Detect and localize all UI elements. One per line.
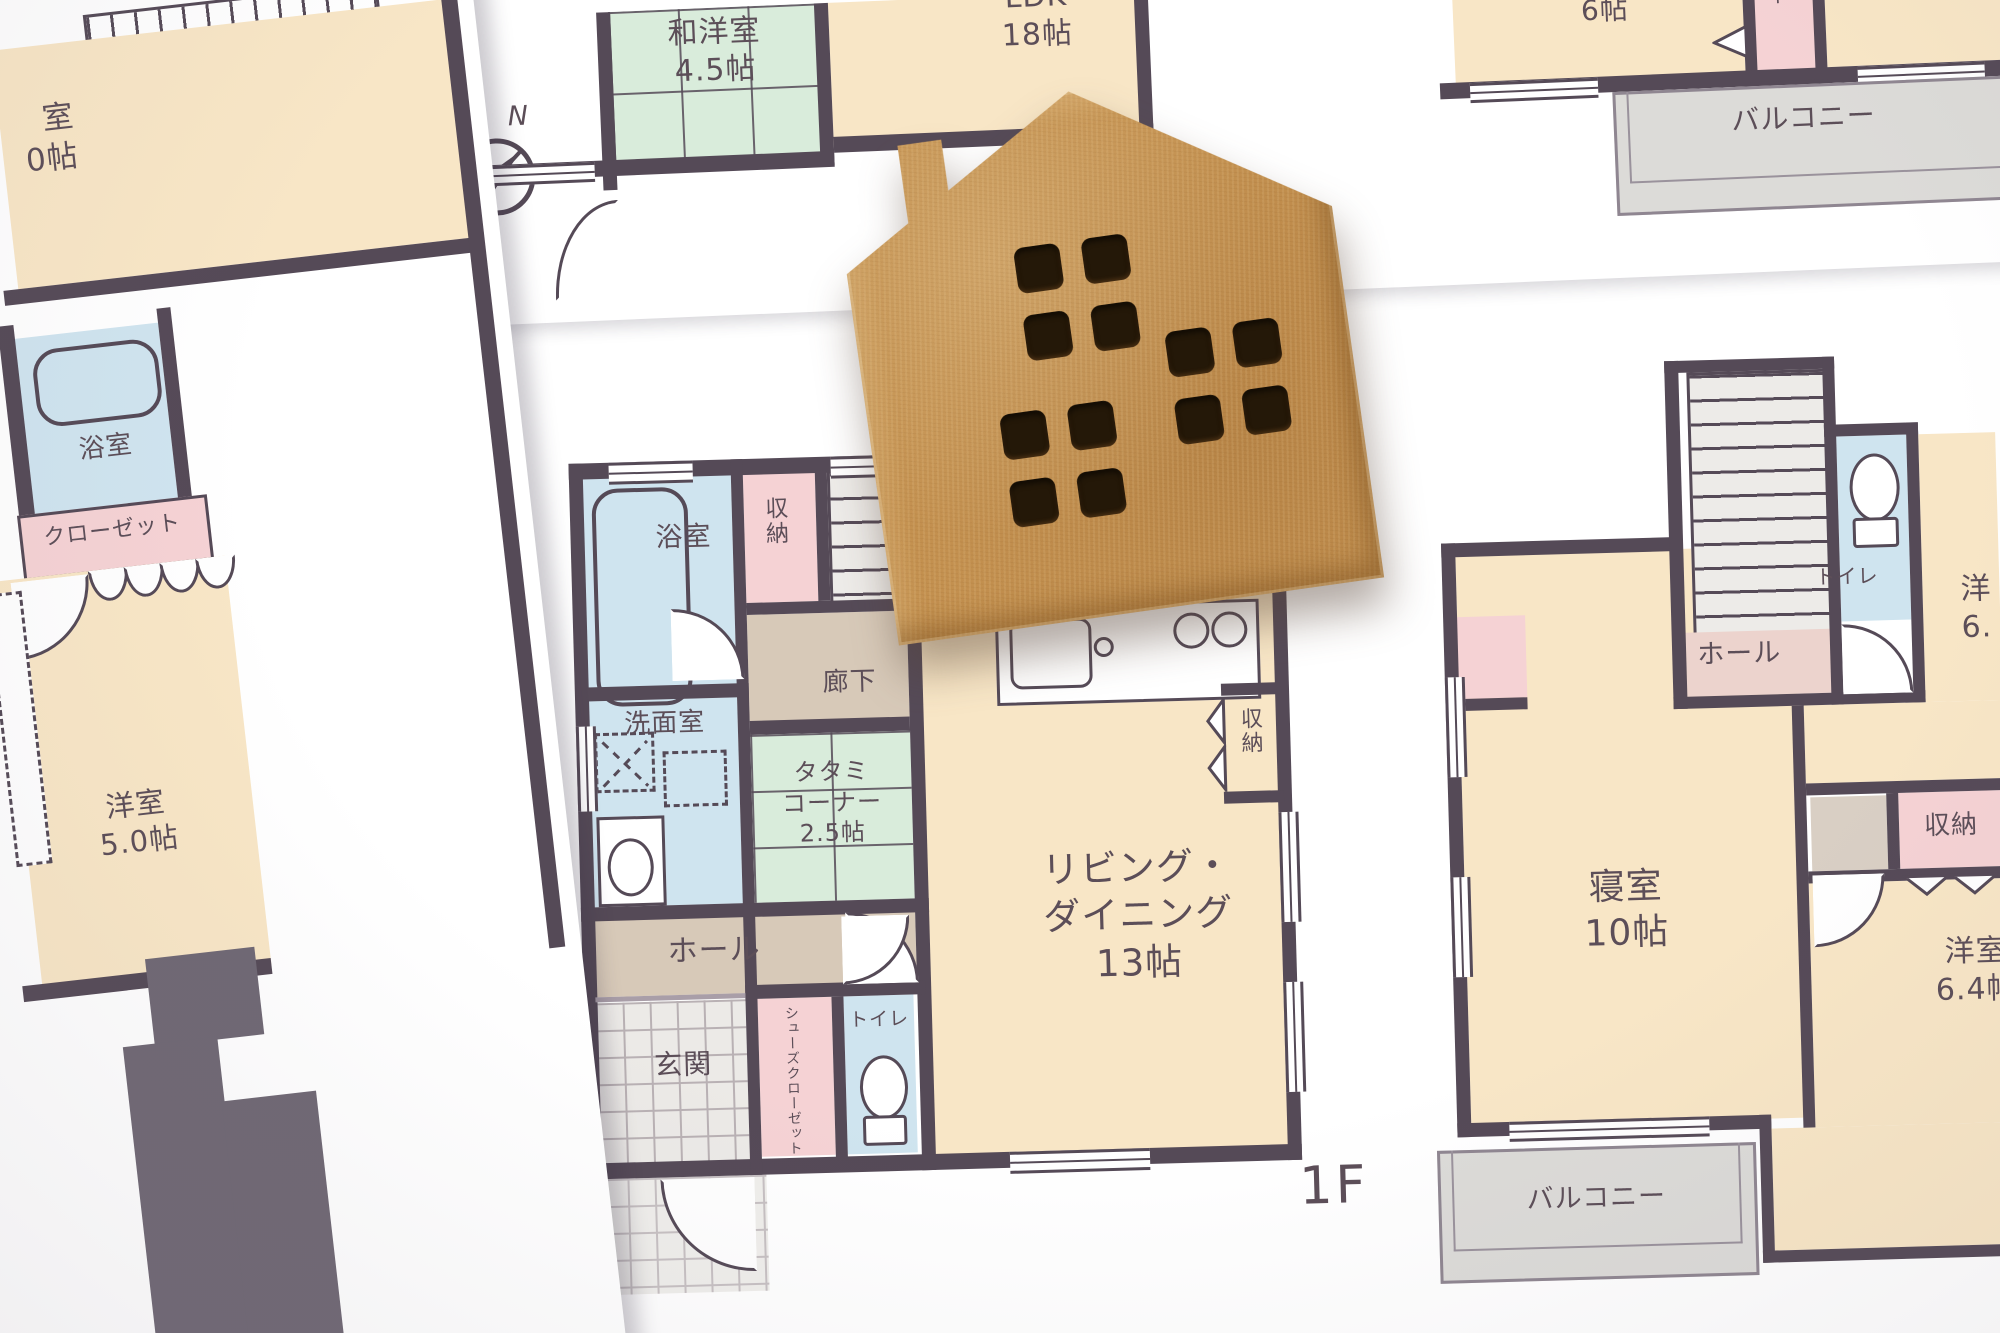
house-window-hole <box>999 409 1051 461</box>
wooden-house-body <box>826 57 1384 645</box>
house-window-hole <box>1164 326 1216 378</box>
house-window-hole <box>1013 242 1065 294</box>
wood-edge-shading <box>826 57 1384 645</box>
house-window-hole <box>1241 384 1293 436</box>
house-window-hole <box>1231 317 1283 369</box>
house-window-hole <box>1173 394 1225 446</box>
house-window-hole <box>1076 467 1128 519</box>
lp-bedroom-label: 洋室 5.0帖 <box>69 779 207 867</box>
lp-dark-structure <box>145 947 264 1047</box>
house-window-hole <box>1022 310 1074 362</box>
house-window-hole <box>1008 476 1060 528</box>
house-window-hole <box>1080 233 1132 285</box>
lp-bathtub-icon <box>30 337 164 429</box>
floor-plan-photo-scene: 浴室 収納 廊下 洗面室 タタミ コーナー 2.5帖 リビング・ ダイニング 1… <box>0 0 2000 1333</box>
wooden-house-model <box>826 57 1384 645</box>
house-window-hole <box>1090 300 1142 352</box>
house-window-hole <box>1066 400 1118 452</box>
